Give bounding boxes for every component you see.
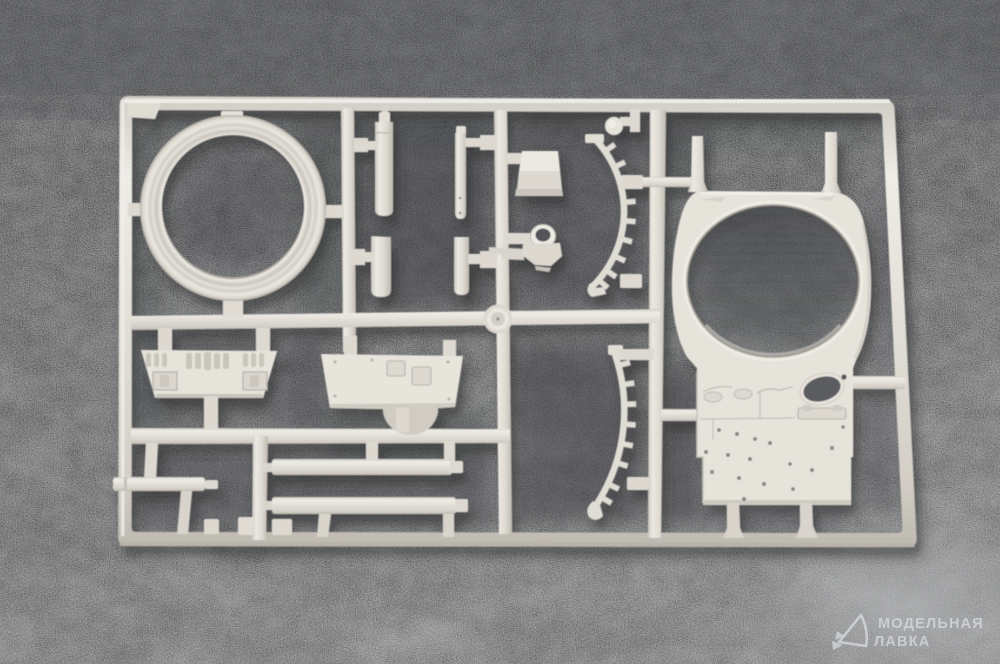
svg-text:МОДЕЛЬНАЯ: МОДЕЛЬНАЯ [878, 616, 984, 632]
svg-text:ЛАВКА: ЛАВКА [874, 634, 930, 650]
